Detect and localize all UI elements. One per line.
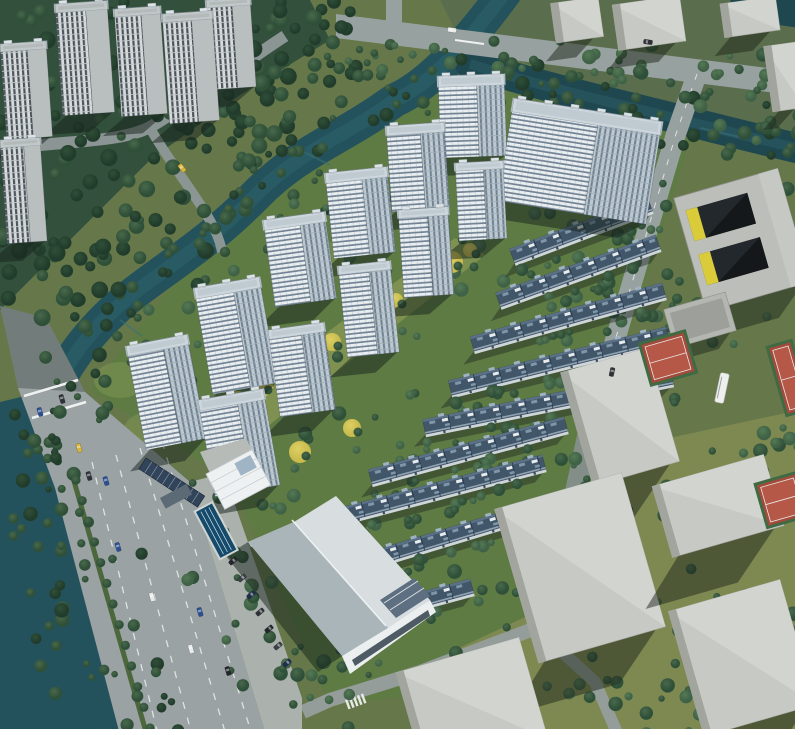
scene-svg (0, 0, 800, 735)
car (447, 27, 457, 33)
aerial-rendering (0, 0, 800, 735)
car (643, 39, 653, 45)
